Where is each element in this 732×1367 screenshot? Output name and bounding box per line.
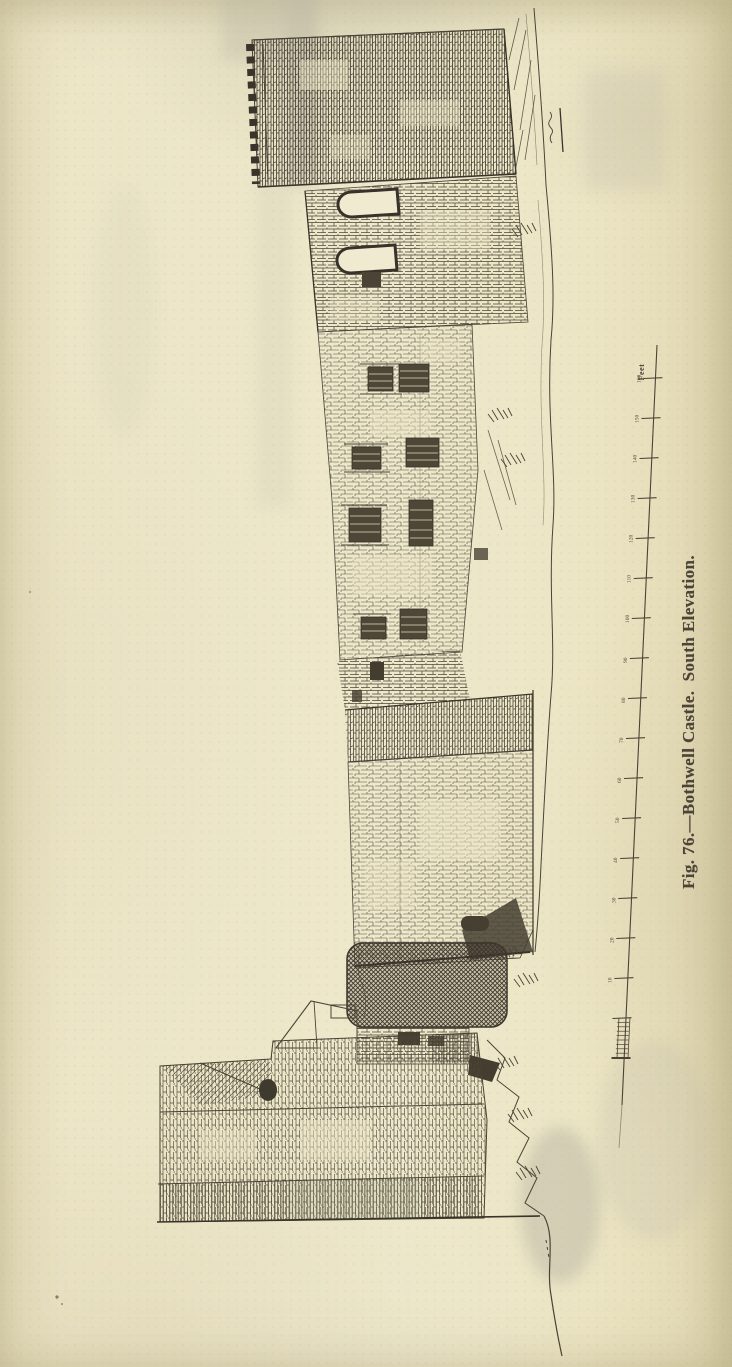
scale-bar: Feet 10203040506070809010011012013014015… bbox=[607, 345, 662, 1148]
arched-window bbox=[337, 245, 397, 273]
scale-tick bbox=[626, 738, 645, 739]
round-tower bbox=[347, 943, 507, 1027]
castle-keep-tower bbox=[250, 29, 516, 187]
scale-tick-label: 110 bbox=[627, 575, 633, 583]
scale-tick-label: 130 bbox=[631, 495, 637, 504]
scale-tick bbox=[618, 898, 637, 899]
figure-caption-text: Fig. 76.—Bothwell Castle. South Elevatio… bbox=[679, 555, 698, 889]
scale-tick bbox=[634, 578, 653, 579]
scale-tick-label: 80 bbox=[621, 697, 627, 703]
scale-tick bbox=[620, 858, 639, 859]
scale-tick-label: 20 bbox=[609, 937, 615, 943]
scale-tick bbox=[628, 698, 647, 699]
scale-tick-label: 50 bbox=[615, 817, 621, 823]
scale-tick bbox=[612, 1018, 631, 1019]
arched-window bbox=[338, 189, 399, 217]
foundation-course bbox=[158, 1176, 484, 1222]
scale-tick bbox=[630, 658, 649, 659]
scale-tick-label: 90 bbox=[623, 657, 629, 663]
curtain-wall-upper bbox=[318, 324, 478, 660]
paper-specks bbox=[29, 591, 63, 1305]
scale-tick bbox=[624, 778, 643, 779]
scale-tick-label: 160 bbox=[636, 375, 642, 384]
scale-tick-label: 140 bbox=[633, 455, 639, 464]
window-opening bbox=[362, 272, 381, 287]
book-page: Feet 10203040506070809010011012013014015… bbox=[0, 0, 732, 1367]
scale-tick-label: 100 bbox=[625, 615, 631, 624]
figure-engraving: Feet 10203040506070809010011012013014015… bbox=[0, 0, 732, 1367]
scale-tick-label: 40 bbox=[613, 857, 619, 863]
scale-tick bbox=[614, 978, 633, 979]
scale-tick bbox=[636, 538, 655, 539]
scale-tick-label: 10 bbox=[607, 977, 613, 983]
scale-tick bbox=[632, 618, 651, 619]
scale-tick-label: 60 bbox=[617, 777, 623, 783]
scale-ticks: 102030405060708090100110120130140150160 bbox=[607, 375, 662, 1059]
scale-tick bbox=[617, 1018, 619, 1058]
scale-line bbox=[622, 345, 657, 1105]
scale-tick bbox=[638, 498, 657, 499]
handwritten-mark bbox=[549, 108, 563, 152]
scale-tick bbox=[622, 818, 641, 819]
scale-tick-label: 150 bbox=[634, 415, 640, 424]
scale-tick-label: 70 bbox=[619, 737, 625, 743]
scale-tick bbox=[616, 938, 635, 939]
figure-caption: Fig. 76.—Bothwell Castle. South Elevatio… bbox=[679, 492, 701, 952]
scale-tick-label: 30 bbox=[611, 897, 617, 903]
scale-tick bbox=[641, 418, 660, 419]
scale-tick bbox=[640, 458, 659, 459]
hall-arched-wall bbox=[305, 176, 528, 332]
scale-tick-label: 120 bbox=[629, 535, 635, 544]
scale-tick bbox=[643, 378, 662, 379]
parapet-band bbox=[337, 650, 533, 762]
